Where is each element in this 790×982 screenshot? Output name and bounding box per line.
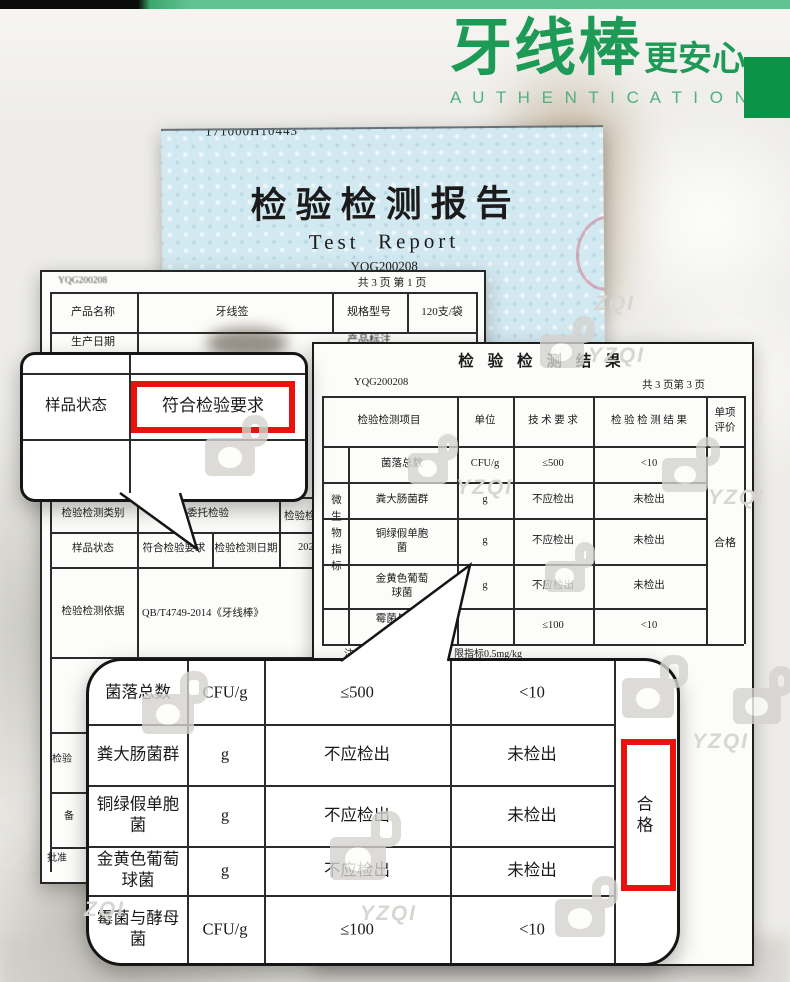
- page1-report-no: YQG200208: [58, 276, 107, 286]
- results-row-req: 不应检出: [532, 579, 574, 593]
- callout-row-result: <10: [519, 918, 545, 939]
- red-stamp-icon: [570, 210, 605, 296]
- results-col-req: 技 术 要 求: [528, 414, 578, 428]
- results-row-req: ≤500: [542, 457, 564, 471]
- results-row-item: 菌落总数: [381, 457, 423, 471]
- callout-row-item: 菌落总数: [105, 681, 171, 702]
- callout-tail: [110, 490, 210, 556]
- grid-line: [264, 661, 266, 963]
- page-title: 牙线棒: [450, 18, 642, 80]
- callout-row-unit: g: [221, 804, 229, 825]
- results-col-unit: 单位: [475, 414, 496, 428]
- grid-line: [614, 661, 616, 963]
- page1-spec-value: 120支/袋: [421, 305, 463, 319]
- results-row-result: <10: [641, 457, 657, 471]
- page1-page-info: 共 3 页 第 1 页: [358, 276, 427, 290]
- cover-title-en: Test Report: [309, 228, 460, 257]
- results-row-unit: g: [482, 493, 487, 507]
- green-square-decoration: [744, 57, 790, 118]
- red-highlight-box: [131, 381, 295, 433]
- grid-line: [89, 846, 614, 848]
- results-row-unit: g: [482, 579, 487, 593]
- callout-row-unit: g: [221, 859, 229, 880]
- grid-line: [593, 396, 595, 644]
- callout-row-req: ≤500: [340, 681, 374, 702]
- page1-fragment: 批准: [47, 849, 67, 864]
- page1-date2-label: 检验检测日期: [215, 542, 278, 556]
- grid-line: [332, 292, 334, 332]
- grid-line: [89, 785, 614, 787]
- results-row-result: 未检出: [633, 493, 665, 507]
- callout-row-req: 不应检出: [324, 743, 390, 764]
- results-verdict: 合格: [714, 536, 736, 550]
- page1-fragment: 备: [64, 807, 74, 822]
- grid-line: [322, 396, 324, 644]
- results-row-result: <10: [641, 619, 657, 633]
- results-row-item: 粪大肠菌群: [376, 493, 429, 507]
- results-col-item: 检验检测项目: [358, 414, 421, 428]
- page1-basis-value: QB/T4749-2014《牙线棒》: [142, 605, 264, 620]
- top-accent-bar: [0, 0, 790, 9]
- results-report-no: YQG200208: [354, 377, 408, 388]
- grid-line: [322, 446, 744, 448]
- page1-spec-label: 规格型号: [347, 305, 391, 319]
- grid-line: [279, 497, 281, 567]
- grid-line: [187, 661, 189, 963]
- page1-product-label: 产品名称: [71, 305, 115, 319]
- results-row-result: 未检出: [633, 534, 665, 548]
- callout-row-result: 未检出: [507, 804, 557, 825]
- results-col-result: 检 验 检 测 结 果: [611, 414, 687, 428]
- grid-line: [89, 895, 614, 897]
- page-subtitle: A U T H E N T I C A T I O N: [450, 88, 790, 108]
- cover-title: 检验检测报告: [250, 180, 520, 229]
- page1-date-label: 生产日期: [71, 335, 115, 349]
- page1-fragment: 检验: [52, 750, 72, 765]
- results-row-req: 不应检出: [532, 493, 574, 507]
- callout-state-label: 样品状态: [45, 396, 107, 416]
- callout-row-item: 粪大肠菌群: [97, 743, 180, 764]
- callout-row-req: ≤100: [340, 918, 374, 939]
- callout-row-unit: g: [221, 743, 229, 764]
- callout-row-item: 铜绿假单胞 菌: [97, 794, 180, 837]
- zoom-callout-results: 菌落总数 CFU/g ≤500 <10 粪大肠菌群 g 不应检出 未检出 铜绿假…: [86, 658, 680, 966]
- callout-row-item: 霉菌与酵母 菌: [97, 908, 180, 951]
- callout-row-result: 未检出: [507, 743, 557, 764]
- callout-row-result: <10: [519, 681, 545, 702]
- callout-tail: [330, 558, 480, 664]
- grid-line: [50, 292, 476, 294]
- grid-line: [89, 724, 614, 726]
- callout-row-item: 金黄色葡萄 球菌: [97, 849, 180, 892]
- grid-line: [706, 396, 708, 644]
- callout-row-unit: CFU/g: [203, 681, 248, 702]
- grid-line: [407, 292, 409, 332]
- zoom-callout-state: 样品状态 符合检验要求: [20, 352, 308, 502]
- results-row-item: 铜绿假单胞 菌: [376, 527, 429, 554]
- results-title: 检 验 检 测 结 果: [458, 352, 625, 372]
- red-highlight-box: [621, 739, 676, 891]
- page-title-suffix: 更安心: [644, 42, 746, 76]
- grid-line: [322, 396, 744, 398]
- grid-line: [50, 792, 88, 794]
- results-row-req: 不应检出: [532, 534, 574, 548]
- brand-banner: 牙线棒 更安心 A U T H E N T I C A T I O N: [450, 18, 790, 128]
- page: 牙线棒 更安心 A U T H E N T I C A T I O N 1710…: [0, 0, 790, 982]
- results-row-unit: g: [482, 534, 487, 548]
- page1-basis-label: 检验检测依据: [62, 605, 125, 619]
- grid-line: [744, 396, 746, 644]
- callout-row-result: 未检出: [507, 859, 557, 880]
- results-row-req: ≤100: [542, 619, 564, 633]
- grid-line: [212, 532, 214, 567]
- callout-row-unit: CFU/g: [203, 918, 248, 939]
- callout-row-req: 不应检出: [324, 859, 390, 880]
- callout-row-req: 不应检出: [324, 804, 390, 825]
- results-row-result: 未检出: [633, 579, 665, 593]
- page1-product-value: 牙线签: [216, 305, 249, 319]
- grid-line: [23, 373, 305, 375]
- grid-line: [513, 396, 515, 644]
- results-col-eval: 单项 评价: [715, 406, 736, 435]
- grid-line: [50, 732, 88, 734]
- results-row-unit: CFU/g: [471, 457, 500, 471]
- grid-line: [450, 661, 452, 963]
- grid-line: [476, 292, 478, 347]
- results-page-info: 共 3 页第 3 页: [642, 377, 705, 392]
- grid-line: [23, 439, 305, 441]
- grid-line: [50, 567, 314, 569]
- page1-state-label: 样品状态: [72, 542, 114, 556]
